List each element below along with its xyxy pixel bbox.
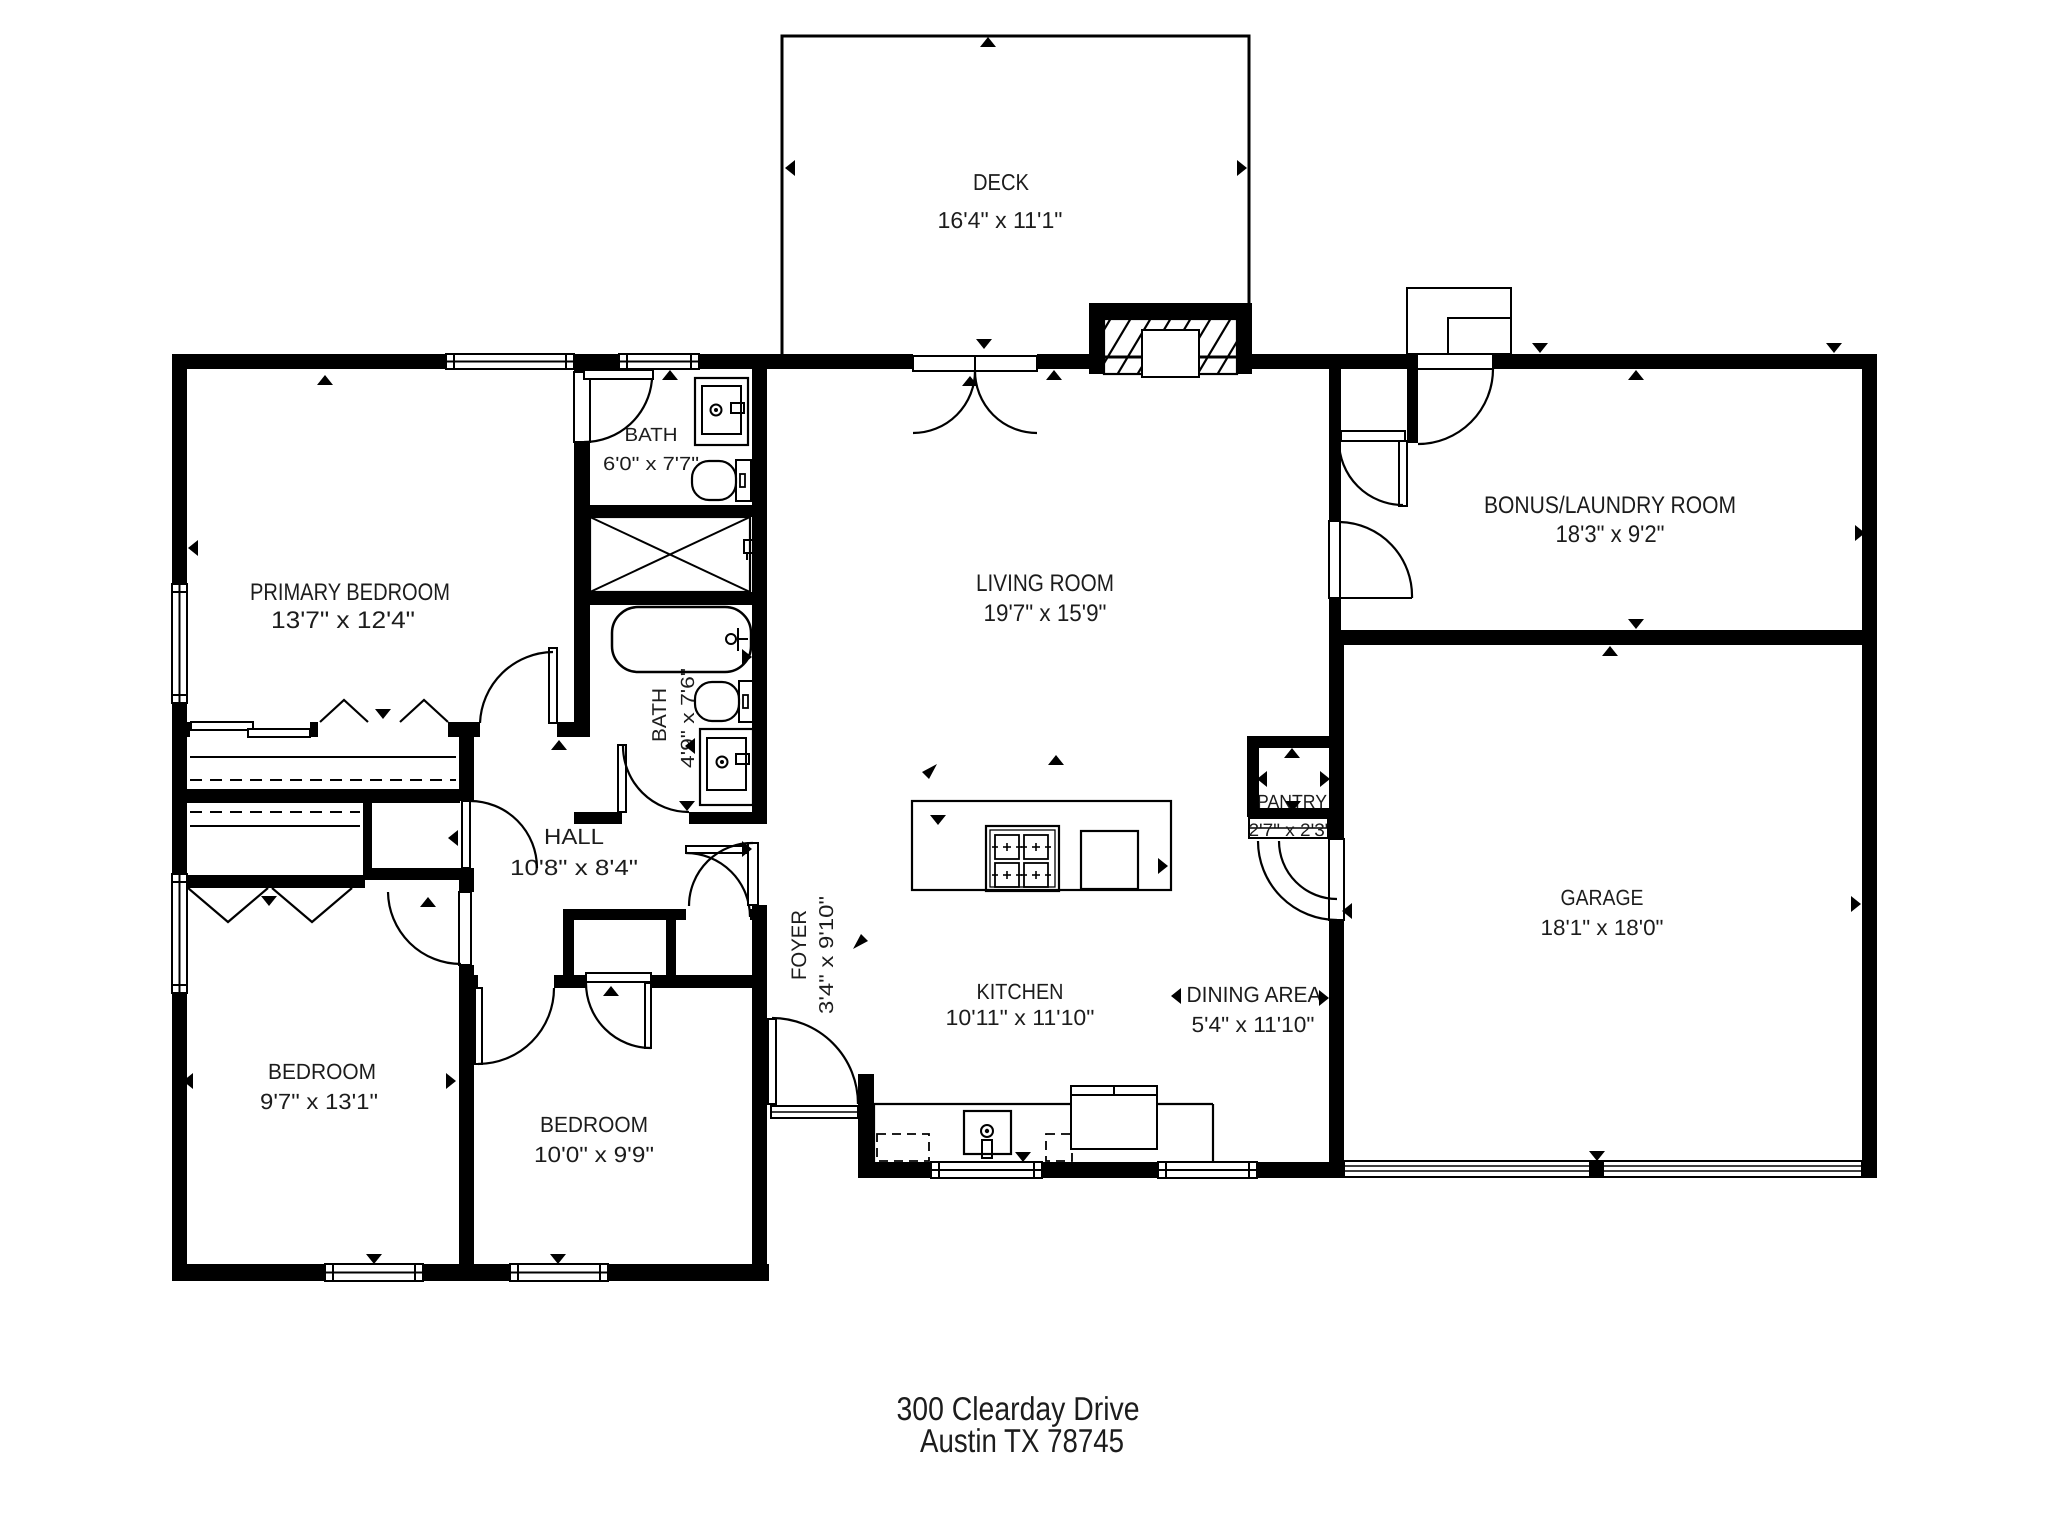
- svg-text:13'7" x 12'4": 13'7" x 12'4": [271, 607, 415, 634]
- svg-text:BATH: BATH: [625, 425, 678, 446]
- svg-text:KITCHEN: KITCHEN: [977, 979, 1064, 1004]
- svg-text:5'4" x 11'10": 5'4" x 11'10": [1192, 1012, 1315, 1037]
- svg-text:FOYER: FOYER: [788, 910, 811, 980]
- svg-text:10'0" x 9'9": 10'0" x 9'9": [534, 1142, 654, 1167]
- svg-text:BEDROOM: BEDROOM: [268, 1059, 376, 1084]
- svg-text:PRIMARY BEDROOM: PRIMARY BEDROOM: [250, 579, 450, 606]
- svg-text:HALL: HALL: [544, 824, 604, 849]
- svg-text:10'11" x 11'10": 10'11" x 11'10": [946, 1005, 1095, 1030]
- svg-text:6'0" x 7'7": 6'0" x 7'7": [603, 454, 699, 475]
- svg-text:2'7" x 2'3": 2'7" x 2'3": [1249, 820, 1332, 840]
- svg-text:18'1" x 18'0": 18'1" x 18'0": [1541, 915, 1664, 940]
- svg-text:9'7" x 13'1": 9'7" x 13'1": [260, 1089, 378, 1114]
- svg-text:BATH: BATH: [649, 688, 671, 742]
- svg-text:18'3" x 9'2": 18'3" x 9'2": [1556, 521, 1665, 548]
- svg-text:DINING AREA: DINING AREA: [1187, 982, 1322, 1007]
- svg-text:GARAGE: GARAGE: [1561, 885, 1644, 910]
- svg-text:DECK: DECK: [973, 169, 1030, 195]
- svg-text:3'4" x 9'10": 3'4" x 9'10": [816, 896, 838, 1014]
- svg-text:BONUS/LAUNDRY ROOM: BONUS/LAUNDRY ROOM: [1484, 492, 1736, 519]
- svg-text:Austin TX 78745: Austin TX 78745: [920, 1422, 1124, 1459]
- svg-text:10'8" x 8'4": 10'8" x 8'4": [510, 855, 638, 880]
- svg-text:LIVING ROOM: LIVING ROOM: [976, 570, 1114, 597]
- svg-text:16'4" x 11'1": 16'4" x 11'1": [938, 207, 1063, 233]
- svg-text:4'9" x 7'6": 4'9" x 7'6": [678, 668, 699, 768]
- svg-text:BEDROOM: BEDROOM: [540, 1112, 648, 1137]
- svg-text:19'7" x 15'9": 19'7" x 15'9": [984, 600, 1107, 627]
